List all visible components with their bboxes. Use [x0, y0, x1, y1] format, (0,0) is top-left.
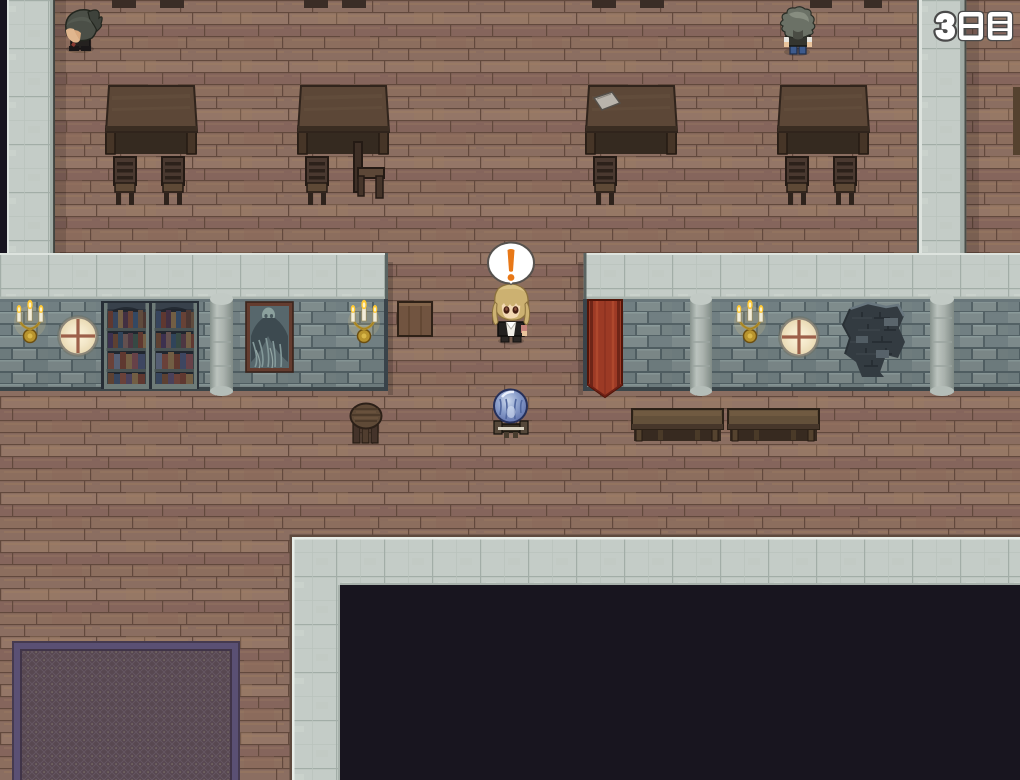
- svg-text:3: 3: [936, 8, 955, 46]
